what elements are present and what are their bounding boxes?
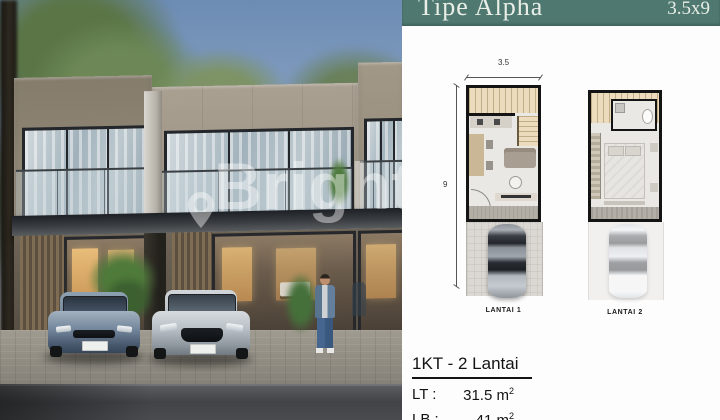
- tv-console: [495, 193, 537, 201]
- car-top-view: [488, 224, 526, 298]
- floorplan-lantai-2: [588, 90, 662, 222]
- spec-row-lt: LT : 31.5 m2: [412, 386, 702, 404]
- bed-bench: [604, 201, 645, 205]
- man-shoes: [316, 348, 334, 353]
- dining-chairs: [486, 140, 493, 170]
- car-wheel: [126, 346, 138, 357]
- width-dimension-line: [466, 77, 541, 78]
- watermark: Brighton: [188, 148, 402, 248]
- car-grille: [181, 328, 223, 342]
- standing-man: [310, 274, 340, 354]
- wardrobe: [591, 133, 601, 199]
- floorplan-1-label: LANTAI 1: [466, 307, 541, 314]
- car-wheel: [154, 348, 166, 359]
- man-jeans: [317, 318, 333, 348]
- type-header-bar: Tipe Alpha 3.5x9: [402, 0, 720, 26]
- brochure-page: Brighton Tipe Alpha 3.5x9 3.5 9 LANTAI 1: [0, 0, 720, 420]
- spec-label: LB :: [412, 411, 452, 420]
- spec-value-sup: 2: [509, 411, 514, 420]
- dining-cabinet: [469, 134, 484, 176]
- car-wheel: [236, 348, 248, 359]
- type-size: 3.5x9: [667, 0, 710, 20]
- watermark-text: Brighton: [214, 148, 402, 224]
- bed: [604, 143, 645, 199]
- car-top-view-ghost: [609, 224, 647, 298]
- floorplan-lantai-1: [466, 85, 541, 222]
- spec-value-sup: 2: [509, 386, 514, 396]
- balcony-strip: [591, 207, 659, 219]
- type-title: Tipe Alpha: [418, 0, 543, 22]
- spec-value: 41 m2: [452, 411, 514, 420]
- car-grille: [73, 330, 115, 338]
- height-dimension-line: [456, 85, 457, 287]
- person-silhouette: [352, 282, 366, 316]
- spec-row-lb: LB : 41 m2: [412, 411, 702, 420]
- stairs: [469, 88, 538, 113]
- exterior-render-photo: Brighton: [0, 0, 402, 420]
- round-table: [509, 176, 522, 189]
- floorplan-2-label: LANTAI 2: [588, 309, 662, 316]
- bathroom: [611, 99, 657, 131]
- entry-terrace: [469, 206, 538, 219]
- kitchen-counter: [470, 116, 512, 128]
- nightstand: [650, 143, 658, 152]
- specs-block: 1KT - 2 Lantai LT : 31.5 m2 LB : 41 m2: [412, 354, 702, 420]
- spec-value-text: 31.5 m: [463, 387, 509, 404]
- spec-value-text: 41 m: [476, 412, 509, 420]
- man-jacket: [315, 285, 335, 318]
- man-head: [320, 274, 330, 285]
- interior-light: [366, 244, 396, 299]
- spec-label: LT :: [412, 386, 452, 404]
- height-dimension-label: 9: [443, 180, 447, 189]
- location-pin-icon: [188, 192, 214, 228]
- nightstand: [650, 183, 658, 192]
- license-plate: [190, 344, 216, 354]
- unit-type-title: 1KT - 2 Lantai: [412, 354, 532, 379]
- road-shadow: [0, 384, 150, 420]
- license-plate: [82, 341, 108, 351]
- width-dimension-label: 3.5: [466, 58, 541, 67]
- stairs-flight: [517, 116, 538, 146]
- car-wheel: [50, 346, 62, 357]
- spec-value: 31.5 m2: [452, 386, 514, 404]
- floorplan-panel: Tipe Alpha 3.5x9 3.5 9 LANTAI 1: [402, 0, 720, 420]
- sofa: [504, 148, 536, 168]
